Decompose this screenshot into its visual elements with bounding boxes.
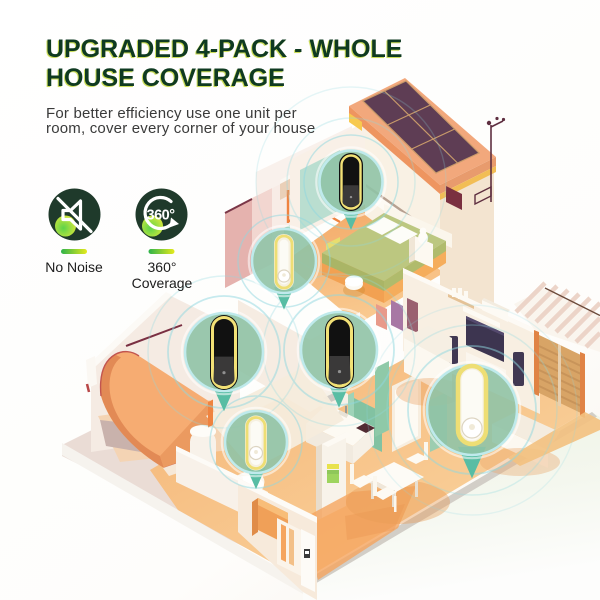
svg-text:360°: 360° (147, 208, 176, 224)
